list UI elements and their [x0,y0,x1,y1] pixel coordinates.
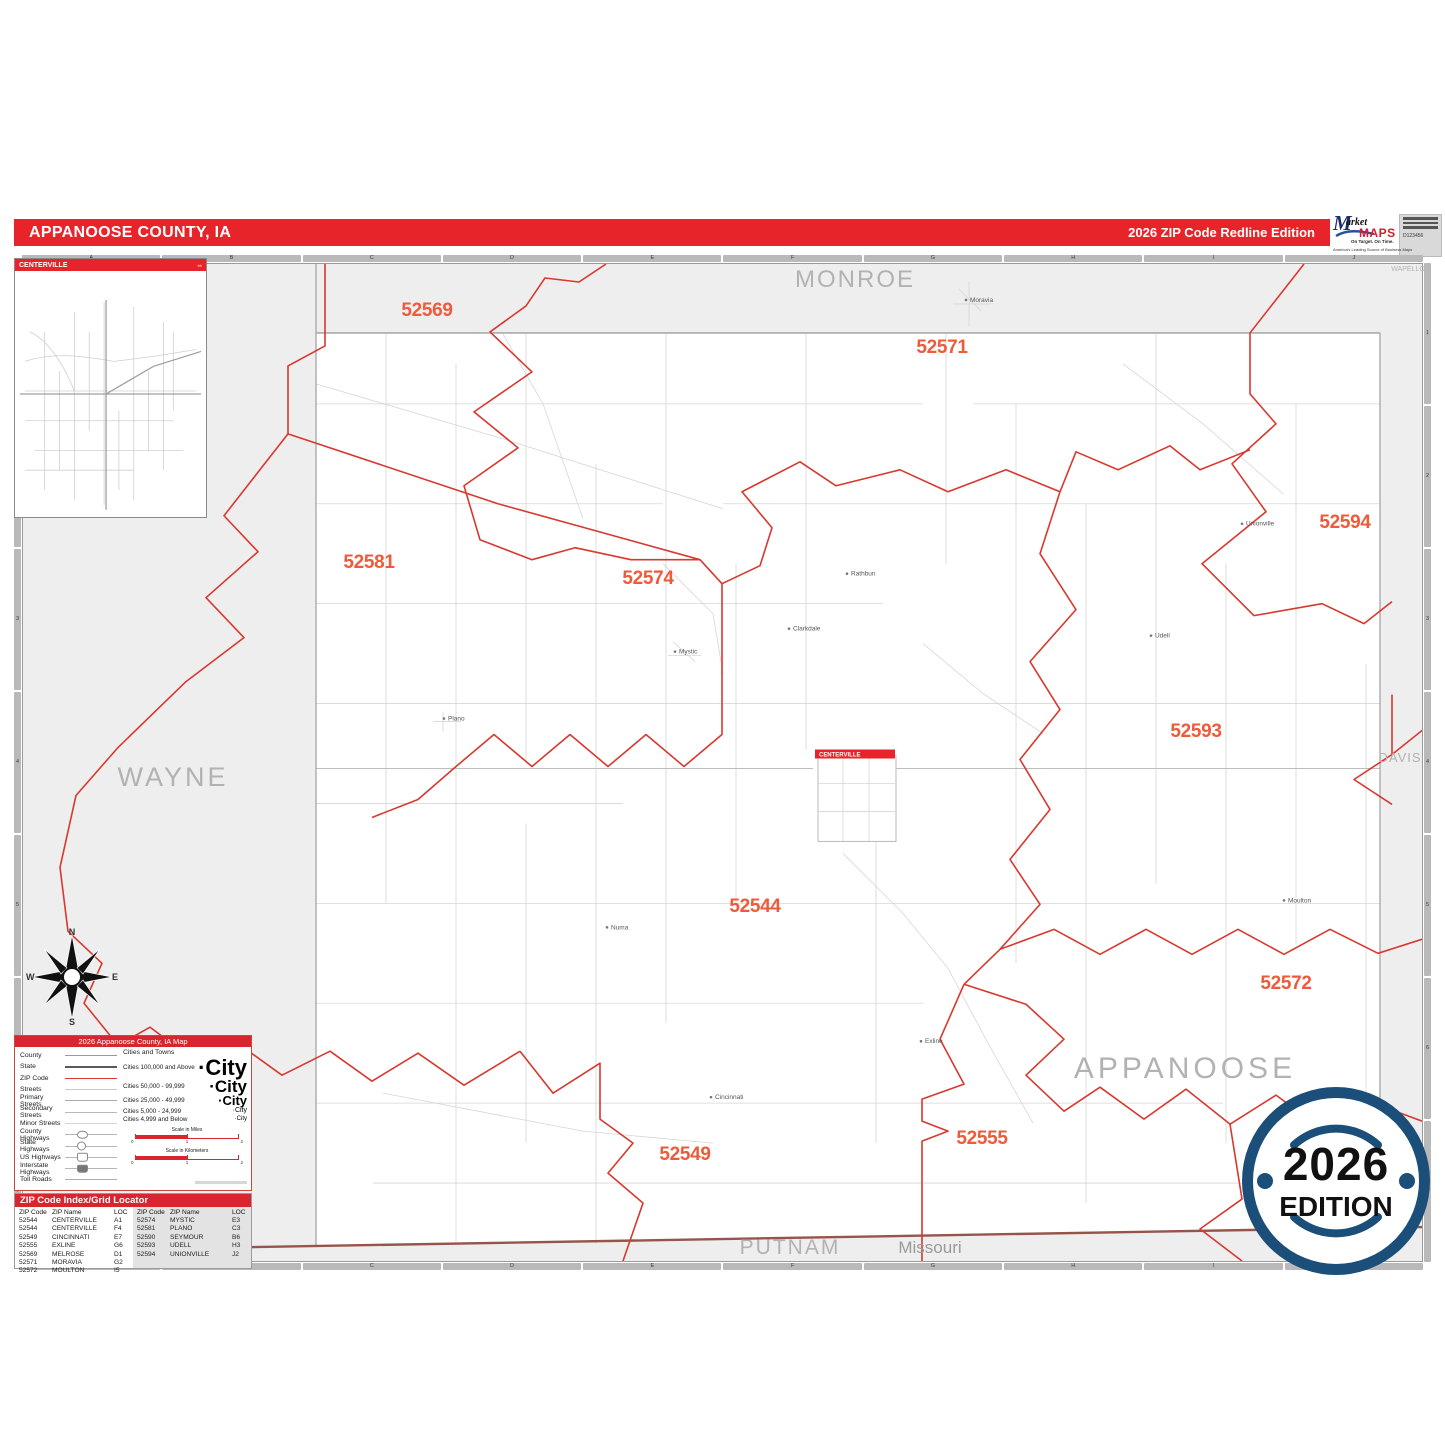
product-code: D123456 [1403,233,1438,239]
legend-item-label: Interstate Highways [20,1162,65,1176]
contact-line [1403,226,1438,229]
badge-edition-word: EDITION [1279,1193,1393,1221]
index-cell: 52590 [137,1234,170,1241]
legend-line-sample [65,1179,117,1180]
index-cell: E7 [114,1234,132,1241]
city-class-row: Cities 4,999 and Below·City [123,1116,247,1123]
county-label-putnam: PUTNAM [740,1236,841,1260]
legend-item-label: Toll Roads [20,1176,65,1183]
index-row: 52581PLANOC3 [137,1225,251,1233]
grid-label: D [443,1263,581,1270]
scale-tick: 2 [240,1160,243,1165]
index-cell: 52574 [137,1217,170,1224]
index-cell: 52569 [19,1251,52,1258]
city-class-row: Cities 25,000 - 49,999·City [123,1095,247,1107]
legend-item-label: US Highways [20,1154,65,1161]
county-label-wapello: WAPELLO [1391,266,1425,273]
index-cell: PLANO [170,1225,232,1232]
page-title: APPANOOSE COUNTY, IA [29,224,231,242]
highway-shield-icon [77,1130,88,1139]
grid-label: J [1285,255,1423,262]
header-bar: APPANOOSE COUNTY, IA 2026 ZIP Code Redli… [14,219,1330,246]
index-row: 52593UDELLH3 [137,1242,251,1250]
scale-tick: 2 [240,1139,243,1144]
compass-east-label: E [112,972,118,982]
legend-item-state-highways: State Highways [20,1140,117,1151]
grid-label: 5 [1424,835,1431,976]
grid-label: 3 [14,549,21,690]
contact-line [1403,222,1438,225]
index-cell: 52555 [19,1242,52,1249]
map-frame: ABCDEFGHIJ ABCDEFGHIJ 1234567 1234567 [14,255,1431,1270]
index-row: 52571MORAVIAG2 [19,1258,133,1266]
grid-label: E [583,1263,721,1270]
index-cell: 52581 [137,1225,170,1232]
scale-bar-miles: Scale in Miles 0 1 2 [131,1127,243,1144]
index-cell: UDELL [170,1242,232,1249]
centerville-inset-map: CENTERVILLE ≈≈ [14,258,207,518]
legend-line-sample [65,1100,117,1101]
town-label: Udell [1155,633,1170,640]
highway-shield-icon [77,1142,86,1151]
city-class-row: Cities 50,000 - 99,999·City [123,1079,247,1094]
index-col-header: ZIP Code [137,1209,170,1216]
index-cell: SEYMOUR [170,1234,232,1241]
marketmaps-logo: M arket MAPS On Target. On Time. America… [1333,214,1442,257]
marketmaps-wordmark: M arket MAPS On Target. On Time. America… [1333,214,1399,257]
index-cell: 52593 [137,1242,170,1249]
legend-city-classes: Cities 100,000 and Above·CityCities 50,0… [123,1058,247,1123]
legend-item-secondary-streets: Secondary Streets [20,1106,117,1117]
zip-label-52569: 52569 [392,300,462,322]
legend-title: 2026 Appanoose County, IA Map [15,1036,251,1047]
index-row: 52574MYSTICE3 [137,1216,251,1224]
city-sample-text: ·City [209,1079,247,1094]
inset-streets [15,271,206,517]
city-class-row: Cities 100,000 and Above·City [123,1058,247,1078]
logo-maps-text: MAPS [1359,226,1396,240]
index-row: 52590SEYMOURB6 [137,1233,251,1241]
county-label-wayne: WAYNE [117,762,228,793]
town-label: Moravia [970,297,993,304]
compass-south-label: S [69,1017,75,1027]
compass-west-label: W [26,972,35,982]
legend-item-label: Secondary Streets [20,1105,65,1119]
index-header-row: ZIP CodeZIP NameLOC [19,1208,133,1216]
city-class-label: Cities 5,000 - 24,999 [123,1108,181,1115]
legend-item-label: County [20,1052,65,1059]
index-cell: MOULTON [52,1267,114,1274]
index-cell: E3 [232,1217,250,1224]
grid-label: 5 [14,835,21,976]
index-cell: CENTERVILLE [52,1217,114,1224]
legend-line-sample [65,1146,117,1147]
grid-label: G [864,1263,1002,1270]
index-right-column: ZIP CodeZIP NameLOC52574MYSTICE352581PLA… [133,1207,251,1268]
index-cell: B6 [232,1234,250,1241]
legend-line-items: CountyStateZIP CodeStreetsPrimary Street… [15,1047,121,1186]
index-cell: G6 [114,1242,132,1249]
grid-label: H [1004,255,1142,262]
zip-label-52594: 52594 [1310,512,1380,534]
legend-line-sample [65,1089,117,1090]
index-cell: 52571 [19,1259,52,1266]
index-cell: 52572 [19,1267,52,1274]
index-cell: J2 [232,1251,250,1258]
index-title: ZIP Code Index/Grid Locator [15,1194,251,1207]
legend-item-county: County [20,1050,117,1061]
legend-line-sample [65,1168,117,1169]
town-label: Mystic [679,649,698,656]
legend-item-label: ZIP Code [20,1075,65,1082]
map-legend: 2026 Appanoose County, IA Map CountyStat… [14,1035,252,1191]
centerville-locator-box: CENTERVILLE [815,750,895,759]
index-cell: UNIONVILLE [170,1251,232,1258]
county-label-missouri: Missouri [898,1238,961,1258]
compass-star-icon [26,927,118,1027]
grid-label: C [303,1263,441,1270]
inset-logo-mark: ≈≈ [198,263,202,268]
index-cell: 52544 [19,1225,52,1232]
county-label-davis: DAVIS [1378,750,1421,765]
compass-rose: N S W E [26,927,118,1027]
index-cell: 52549 [19,1234,52,1241]
county-label-appanoose: APPANOOSE [1074,1052,1296,1086]
legend-item-state: State [20,1061,117,1072]
legend-item-label: Streets [20,1086,65,1093]
town-label: Cincinnati [715,1094,743,1101]
index-cell: C3 [232,1225,250,1232]
edition-badge: 2026 EDITION [1242,1087,1430,1275]
index-cell: CENTERVILLE [52,1225,114,1232]
scale-tick: 0 [131,1139,134,1144]
index-cell: F4 [114,1225,132,1232]
index-cell: G2 [114,1259,132,1266]
index-header-row: ZIP CodeZIP NameLOC [137,1208,251,1216]
index-cell: MELROSE [52,1251,114,1258]
index-cell: H3 [232,1242,250,1249]
zip-label-52574: 52574 [613,568,683,590]
city-class-row: Cities 5,000 - 24,999·City [123,1108,247,1115]
legend-line-sample [65,1112,117,1113]
scale-tick: 1 [186,1160,189,1165]
legend-item-label: Minor Streets [20,1120,65,1127]
highway-shield-icon [77,1153,88,1162]
index-row: 52549CINCINNATIE7 [19,1233,133,1241]
inset-title: CENTERVILLE [19,262,68,269]
index-col-header: LOC [114,1209,132,1216]
grid-label: D [443,255,581,262]
index-col-header: LOC [232,1209,250,1216]
edition-label: 2026 ZIP Code Redline Edition [1128,225,1315,240]
legend-line-sample [65,1134,117,1135]
legend-item-toll-roads: Toll Roads [20,1174,117,1185]
index-cell: 52544 [19,1217,52,1224]
grid-label: F [723,255,861,262]
legend-line-sample [65,1078,117,1079]
index-row: 52572MOULTONI5 [19,1267,133,1275]
zip-code-index: ZIP Code Index/Grid Locator ZIP CodeZIP … [14,1193,252,1269]
city-sample-text: ·City [218,1095,247,1107]
grid-label: 3 [1424,549,1431,690]
index-cell: A1 [114,1217,132,1224]
index-cell: 52594 [137,1251,170,1258]
index-row: 52569MELROSED1 [19,1250,133,1258]
centerville-box-label: CENTERVILLE [819,753,860,759]
town-label: Plano [448,716,465,723]
grid-label: 4 [14,692,21,833]
index-cell: MYSTIC [170,1217,232,1224]
grid-label: F [723,1263,861,1270]
zip-label-52544: 52544 [720,896,790,918]
grid-strip-top: ABCDEFGHIJ [22,255,1423,262]
town-label: Exline [925,1038,943,1045]
zip-label-52555: 52555 [947,1128,1017,1150]
grid-label: E [583,255,721,262]
map-sheet: APPANOOSE COUNTY, IA 2026 ZIP Code Redli… [0,0,1445,1445]
zip-label-52593: 52593 [1161,721,1231,743]
index-row: 52594UNIONVILLEJ2 [137,1250,251,1258]
county-label-monroe: MONROE [795,266,915,294]
index-left-column: ZIP CodeZIP NameLOC52544CENTERVILLEA1525… [15,1207,133,1268]
zip-label-52571: 52571 [907,337,977,359]
city-sample-text: ·City [198,1058,247,1078]
legend-line-sample [65,1055,117,1056]
town-label: Unionville [1246,521,1275,528]
badge-year: 2026 [1283,1141,1389,1187]
index-col-header: ZIP Code [19,1209,52,1216]
inset-header: CENTERVILLE ≈≈ [15,259,206,271]
legend-line-sample [65,1123,117,1124]
logo-subtagline: America's Leading Source of Business Map… [1333,247,1412,252]
city-class-label: Cities 4,999 and Below [123,1116,187,1123]
index-cell: MORAVIA [52,1259,114,1266]
town-label: Numa [611,924,629,931]
index-cell: EXLINE [52,1242,114,1249]
legend-item-label: State [20,1063,65,1070]
index-cell: CINCINNATI [52,1234,114,1241]
legend-fineprint [195,1181,247,1184]
grid-label: 1 [1424,263,1431,404]
index-col-header: ZIP Name [170,1209,232,1216]
grid-label: I [1144,255,1282,262]
grid-label: 2 [1424,406,1431,547]
legend-line-sample [65,1157,117,1158]
zip-label-52549: 52549 [650,1144,720,1166]
towns-layer: Moravia Rathbun Clarkdale Mystic Plano N… [443,297,1312,1101]
index-row: 52555EXLINEG6 [19,1242,133,1250]
legend-line-sample [65,1066,117,1068]
town-label: Rathbun [851,571,876,578]
scale-tick: 0 [131,1160,134,1165]
contact-line [1403,217,1438,220]
compass-north-label: N [69,927,76,937]
town-label: Clarkdale [793,626,821,633]
legend-item-zip-code: ZIP Code [20,1073,117,1084]
scale-bar-kilometers: Scale in Kilometers 0 1 2 [131,1148,243,1165]
city-class-label: Cities 25,000 - 49,999 [123,1097,185,1104]
city-class-label: Cities 50,000 - 99,999 [123,1083,185,1090]
logo-tagline: On Target. On Time. [1351,239,1394,244]
roads-layer [316,282,1380,1244]
zip-label-52572: 52572 [1251,973,1321,995]
index-cell: I5 [114,1267,132,1274]
highway-shield-icon [77,1164,88,1173]
grid-label: H [1004,1263,1142,1270]
city-sample-text: ·City [235,1117,247,1122]
index-row: 52544CENTERVILLEA1 [19,1216,133,1224]
legend-item-label: State Highways [20,1139,65,1153]
index-cell: D1 [114,1251,132,1258]
grid-label: C [303,255,441,262]
index-row: 52544CENTERVILLEF4 [19,1225,133,1233]
grid-label: 4 [1424,692,1431,833]
legend-item-interstate-highways: Interstate Highways [20,1163,117,1174]
index-col-header: ZIP Name [52,1209,114,1216]
town-label: Moulton [1288,897,1311,904]
city-class-label: Cities 100,000 and Above [123,1064,195,1071]
scale-tick: 1 [186,1139,189,1144]
legend-cities-column: Cities and Towns Cities 100,000 and Abov… [121,1047,251,1186]
grid-label: G [864,255,1002,262]
city-sample-text: ·City [233,1108,247,1114]
zip-label-52581: 52581 [334,552,404,574]
